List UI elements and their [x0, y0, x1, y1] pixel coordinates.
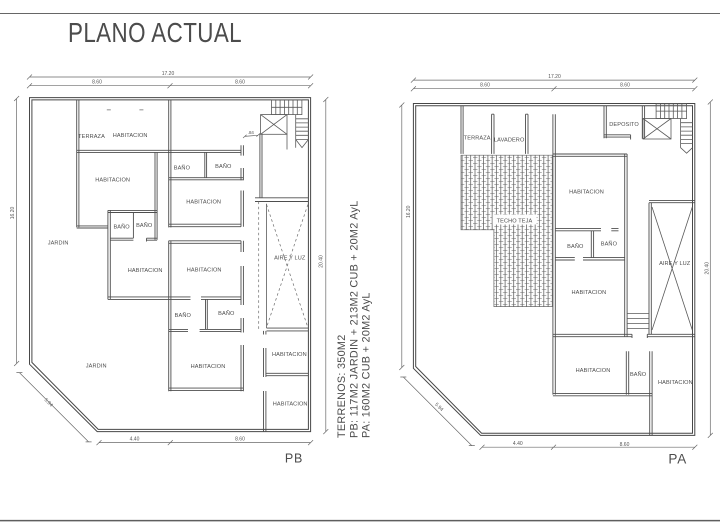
svg-text:4.40: 4.40	[130, 437, 140, 443]
svg-text:BAÑO: BAÑO	[567, 243, 584, 250]
svg-text:8.60: 8.60	[235, 437, 245, 443]
svg-text:AIRE Y LUZ: AIRE Y LUZ	[274, 256, 306, 262]
svg-text:BAÑO: BAÑO	[175, 312, 192, 319]
svg-text:JARDIN: JARDIN	[48, 240, 69, 246]
svg-text:TECHO TEJA: TECHO TEJA	[497, 219, 533, 225]
svg-text:BAÑO: BAÑO	[215, 163, 232, 170]
svg-text:BAÑO: BAÑO	[601, 241, 618, 248]
svg-text:HABITACION: HABITACION	[95, 178, 130, 184]
svg-text:JARDIN: JARDIN	[86, 364, 107, 370]
svg-text:17.20: 17.20	[162, 71, 175, 77]
svg-text:BAÑO: BAÑO	[174, 165, 191, 172]
svg-text:AIRE Y LUZ: AIRE Y LUZ	[659, 261, 691, 267]
svg-text:17.20: 17.20	[548, 74, 561, 80]
svg-text:PLANO ACTUAL: PLANO ACTUAL	[68, 18, 242, 49]
svg-text:8.60: 8.60	[620, 83, 630, 89]
svg-text:8.60: 8.60	[92, 80, 102, 86]
svg-text:BAÑO: BAÑO	[630, 371, 647, 378]
svg-text:PA: PA	[668, 452, 687, 467]
svg-text:HABITACION: HABITACION	[569, 189, 604, 195]
svg-text:.84: .84	[248, 130, 255, 135]
svg-text:HABITACION: HABITACION	[576, 368, 611, 374]
svg-text:16.20: 16.20	[406, 205, 412, 218]
svg-text:TERRAZA: TERRAZA	[78, 134, 105, 140]
svg-text:4.40: 4.40	[513, 441, 523, 447]
svg-text:TERRENOS: 350M2: TERRENOS: 350M2	[336, 334, 348, 438]
svg-text:16.20: 16.20	[10, 207, 16, 220]
svg-text:HABITACION: HABITACION	[187, 268, 222, 274]
svg-text:LAVADERO: LAVADERO	[494, 138, 525, 144]
svg-text:BAÑO: BAÑO	[218, 310, 235, 317]
svg-text:HABITACION: HABITACION	[658, 380, 693, 386]
svg-text:HABITACION: HABITACION	[272, 352, 307, 358]
svg-text:8.60: 8.60	[235, 80, 245, 86]
svg-text:DEPOSITO: DEPOSITO	[609, 122, 639, 128]
svg-text:BAÑO: BAÑO	[113, 223, 130, 230]
svg-text:BAÑO: BAÑO	[136, 222, 153, 229]
svg-text:HABITACION: HABITACION	[128, 268, 163, 274]
svg-text:20.40: 20.40	[705, 262, 711, 275]
svg-text:PA: 160M2 CUB + 20M2 AyL: PA: 160M2 CUB + 20M2 AyL	[361, 292, 373, 438]
svg-text:PB: PB	[285, 452, 303, 466]
svg-text:HABITACION: HABITACION	[186, 200, 221, 206]
svg-text:HABITACION: HABITACION	[572, 290, 607, 296]
svg-text:8.60: 8.60	[620, 442, 630, 448]
svg-text:HABITACION: HABITACION	[113, 133, 148, 139]
svg-text:HABITACION: HABITACION	[273, 401, 308, 407]
svg-text:HABITACION: HABITACION	[191, 364, 226, 370]
svg-text:20.40: 20.40	[319, 255, 325, 268]
svg-text:PB: 117M2 JARDIN + 213M2 CUB +: PB: 117M2 JARDIN + 213M2 CUB + 20M2 AyL	[348, 200, 360, 438]
svg-text:8.60: 8.60	[480, 83, 490, 89]
svg-text:TERRAZA: TERRAZA	[464, 135, 491, 141]
